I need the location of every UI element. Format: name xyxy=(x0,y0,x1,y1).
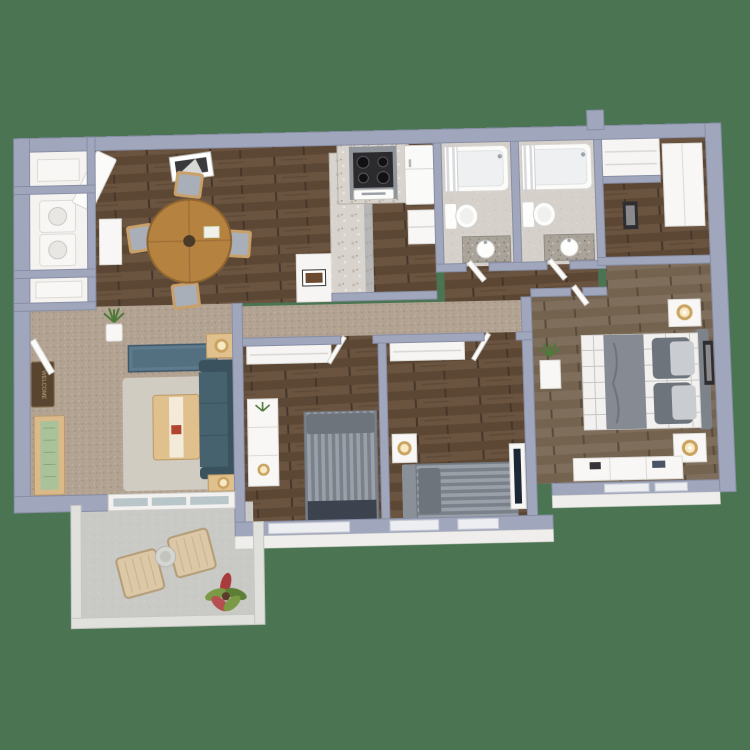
chair-seat xyxy=(177,174,201,196)
sliding-glass-door xyxy=(108,492,235,511)
storage-shelf-top xyxy=(38,159,80,182)
vanity xyxy=(544,234,595,261)
vanity xyxy=(462,236,511,263)
plant-pedestal xyxy=(539,343,560,389)
wall-closet-divider-1 xyxy=(14,185,96,195)
refrigerator xyxy=(404,145,434,205)
nightstand-top xyxy=(668,299,701,327)
burner xyxy=(378,157,388,167)
coat-closet xyxy=(601,138,660,176)
sideboard xyxy=(99,219,121,265)
mat-label: WELCOME xyxy=(40,371,46,400)
master-window-a xyxy=(604,483,649,492)
wall-master-entry-b xyxy=(583,287,607,295)
wall-closet-column xyxy=(87,137,96,310)
table-card xyxy=(204,227,219,238)
toilet xyxy=(522,201,556,227)
shower-curtain xyxy=(521,145,535,190)
dresser xyxy=(573,456,683,481)
slider-pane xyxy=(113,498,147,507)
bathtub xyxy=(444,145,509,192)
wall-closet-divider-2 xyxy=(14,269,96,279)
bedroom3-bed xyxy=(402,462,519,519)
washer-door xyxy=(49,207,67,225)
wall-master-entry-a xyxy=(531,288,571,297)
burner xyxy=(358,173,368,183)
wall-coat-closet xyxy=(603,175,661,183)
toilet-tank xyxy=(445,203,458,229)
niche-art-image xyxy=(305,273,322,283)
floor-plan-scene: WELCOME xyxy=(0,0,750,750)
patio-wall-right xyxy=(253,522,265,625)
gray-throw xyxy=(603,334,647,429)
bedroom3-tv-console xyxy=(509,444,526,509)
range xyxy=(349,146,398,200)
dryer-door xyxy=(49,241,67,259)
burner xyxy=(357,156,369,168)
pillow xyxy=(418,468,441,514)
cushion-line xyxy=(200,435,228,436)
round-dining-table xyxy=(147,199,232,284)
bedroom3-nightstand xyxy=(392,434,417,463)
cooktop xyxy=(353,152,393,188)
wall-bath-bottom-a xyxy=(436,264,466,273)
toilet-tank xyxy=(522,202,535,228)
fridge-body xyxy=(404,145,434,205)
burner xyxy=(377,172,389,184)
wall-bath-bottom-b xyxy=(489,262,547,271)
master-dresser xyxy=(573,456,683,481)
foot-blanket xyxy=(308,500,377,521)
bedroom3-window-a xyxy=(390,520,439,531)
entry-bench xyxy=(34,416,65,496)
wall-chase xyxy=(587,110,604,130)
dining-chair-south xyxy=(170,281,201,310)
drawer-line xyxy=(248,455,278,456)
bedroom2-bed xyxy=(304,411,379,521)
bench-runner xyxy=(40,421,58,490)
drawer-line xyxy=(248,427,278,428)
slider-pane xyxy=(152,497,186,506)
pillow-light xyxy=(670,341,695,376)
shower-curtain xyxy=(444,146,458,191)
wall-kitchen-bottom xyxy=(332,291,437,301)
wall-bedrooms-top-c xyxy=(516,332,532,340)
dresser-item xyxy=(652,461,665,468)
wall-living-bottom xyxy=(14,495,108,513)
coffee-table xyxy=(153,394,200,460)
fridge-split xyxy=(405,169,434,170)
master-window-b xyxy=(655,482,688,491)
bathtub xyxy=(521,143,592,190)
storage-shelf-bottom xyxy=(36,281,82,298)
bedroom2-window xyxy=(268,522,349,534)
cushion-line xyxy=(199,403,227,404)
sofa-seat xyxy=(199,372,228,467)
pedestal xyxy=(540,360,561,389)
hall-wall-art-image xyxy=(626,205,636,225)
slider-pane xyxy=(190,496,229,505)
patio-side-table xyxy=(155,546,175,567)
floor-plan-render: WELCOME xyxy=(0,0,750,750)
master-bed xyxy=(581,329,712,432)
bedroom3-window-b xyxy=(458,518,499,529)
wall-closet-bottom xyxy=(14,302,96,312)
art-niche-wall xyxy=(296,254,332,302)
bedroom2-dresser xyxy=(247,399,279,487)
chair-seat xyxy=(174,284,198,307)
table-decor xyxy=(171,425,181,434)
fridge-handle xyxy=(409,159,412,167)
patio-wall-left xyxy=(71,505,82,628)
pillow-light xyxy=(671,385,696,420)
pantry-shelf-line xyxy=(408,227,435,228)
plant-pot xyxy=(106,324,122,341)
toilet xyxy=(445,203,479,229)
dining-chair-north xyxy=(173,171,204,200)
pillow xyxy=(306,413,375,435)
dresser-item xyxy=(590,462,601,469)
